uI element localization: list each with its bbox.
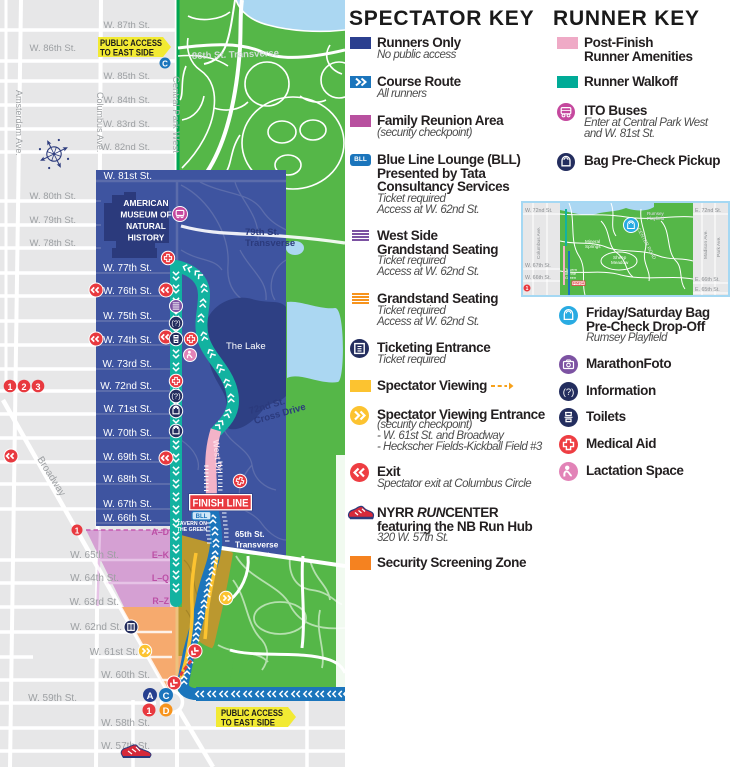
svg-text:PUBLIC ACCESS: PUBLIC ACCESS [100,38,162,48]
svg-text:Springs: Springs [585,244,601,249]
svg-text:PUBLIC ACCESS: PUBLIC ACCESS [221,708,283,718]
svg-text:L–Q: L–Q [152,573,169,583]
svg-text:Park Ave.: Park Ave. [716,237,722,257]
svg-text:Playfield: Playfield [647,216,665,221]
svg-text:1: 1 [146,706,152,717]
svg-text:W. 69th St.: W. 69th St. [103,452,152,463]
svg-text:R–Z: R–Z [152,596,169,606]
svg-text:FINISH LINE: FINISH LINE [193,498,249,510]
svg-text:(?): (?) [563,387,575,398]
svg-text:Meadow: Meadow [611,260,629,265]
svg-text:W. 61st St.: W. 61st St. [90,647,138,658]
svg-text:THE GREEN: THE GREEN [177,527,208,533]
svg-text:W. 62nd St.: W. 62nd St. [70,622,122,633]
svg-text:Columbus Ave.: Columbus Ave. [536,227,542,259]
svg-text:W. 68th St.: W. 68th St. [103,474,152,485]
svg-text:D: D [163,706,170,717]
svg-text:W. 66th St.: W. 66th St. [525,275,551,281]
svg-text:AMERICAN: AMERICAN [123,198,168,208]
svg-text:W. 72nd St.: W. 72nd St. [525,208,552,214]
svg-text:W. 76th St.: W. 76th St. [103,286,152,297]
svg-text:1: 1 [526,286,529,292]
svg-text:W. 80th St.: W. 80th St. [30,191,76,202]
svg-text:W. 60th St.: W. 60th St. [101,670,150,681]
svg-text:W. 67th St.: W. 67th St. [525,263,551,269]
svg-text:W. 64th St.: W. 64th St. [70,573,119,584]
svg-text:W. 78th St.: W. 78th St. [30,238,76,249]
svg-text:A–D: A–D [151,527,169,537]
svg-text:W. 81st St.: W. 81st St. [104,171,152,182]
svg-text:E. 65th St.: E. 65th St. [695,287,720,293]
svg-text:W. 79th St.: W. 79th St. [30,215,76,226]
svg-text:TO EAST SIDE: TO EAST SIDE [221,718,275,728]
svg-text:Central Park West: Central Park West [170,76,181,153]
svg-text:W. 84th St.: W. 84th St. [104,95,150,106]
svg-text:E. 72nd St.: E. 72nd St. [695,208,721,214]
svg-text:W. 71st St.: W. 71st St. [104,404,152,415]
svg-text:W. 65th St.: W. 65th St. [70,550,119,561]
svg-text:FINISH: FINISH [573,282,585,286]
svg-text:W. 58th St.: W. 58th St. [101,718,150,729]
svg-text:Transverse: Transverse [235,541,279,550]
svg-text:1: 1 [7,382,12,392]
svg-text:2: 2 [21,382,26,392]
svg-text:TO EAST SIDE: TO EAST SIDE [100,48,154,58]
svg-text:W. 73rd St.: W. 73rd St. [103,359,152,370]
svg-text:Columbus Ave.: Columbus Ave. [95,92,105,152]
svg-text:W. 70th St.: W. 70th St. [103,428,152,439]
svg-text:W. 86th St.: W. 86th St. [30,43,76,54]
svg-text:W. 63rd St.: W. 63rd St. [70,597,119,608]
svg-text:79th St.: 79th St. [245,227,279,238]
svg-text:W. 67th St.: W. 67th St. [103,499,152,510]
svg-text:1: 1 [75,527,80,536]
svg-text:3: 3 [35,382,40,392]
svg-text:W. 59th St.: W. 59th St. [28,693,77,704]
svg-text:NATURAL: NATURAL [126,221,166,231]
svg-text:E. 66th St.: E. 66th St. [695,277,720,283]
svg-text:W. 85th St.: W. 85th St. [104,71,150,82]
svg-text:W. 74th St.: W. 74th St. [103,335,152,346]
svg-text:C: C [162,60,168,69]
svg-text:W. 66th St.: W. 66th St. [103,513,152,524]
svg-text:Madison Ave.: Madison Ave. [703,230,709,259]
svg-text:W. 75th St.: W. 75th St. [103,311,152,322]
svg-text:The Lake: The Lake [226,341,266,352]
svg-text:HISTORY: HISTORY [128,233,165,243]
svg-text:Transverse: Transverse [245,238,295,249]
svg-text:C: C [163,691,170,702]
svg-text:Green: Green [565,275,576,280]
svg-text:MUSEUM OF: MUSEUM OF [120,210,171,220]
svg-text:W. 72nd St.: W. 72nd St. [100,381,152,392]
svg-text:W. 77th St.: W. 77th St. [103,263,152,274]
svg-text:E–K: E–K [152,550,170,560]
svg-text:A: A [147,691,154,702]
svg-text:Amsterdam Ave.: Amsterdam Ave. [14,90,24,156]
svg-text:W. 83rd St.: W. 83rd St. [103,119,150,130]
svg-text:BLL: BLL [196,514,208,520]
svg-text:65th St.: 65th St. [235,530,265,539]
svg-text:W. 87th St.: W. 87th St. [104,20,150,31]
svg-text:W. 82nd St.: W. 82nd St. [101,142,150,153]
